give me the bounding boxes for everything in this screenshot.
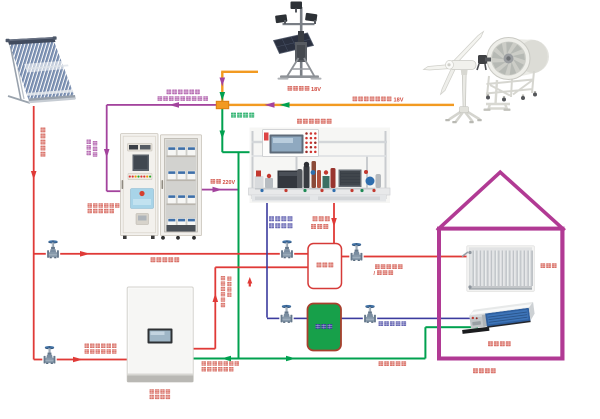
svg-text:220V: 220V bbox=[223, 180, 236, 186]
svg-text:18V: 18V bbox=[394, 98, 404, 104]
svg-text:18V: 18V bbox=[311, 87, 321, 93]
